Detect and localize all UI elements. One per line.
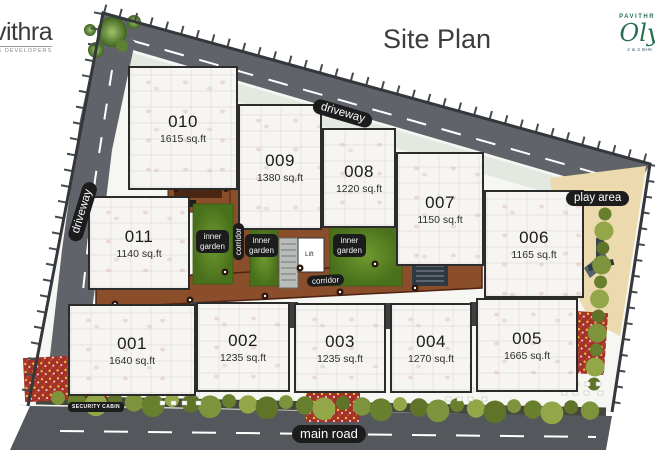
unit-010: 010 1615 sq.ft: [128, 66, 238, 190]
unit-area: 1140 sq.ft: [116, 248, 161, 260]
unit-number: 005: [512, 329, 542, 349]
unit-002: 002 1235 sq.ft: [196, 302, 290, 392]
unit-area: 1270 sq.ft: [408, 353, 454, 365]
lift-label: Lift: [305, 251, 314, 258]
page-title: Site Plan: [383, 24, 491, 55]
unit-number: 003: [325, 332, 355, 352]
unit-area: 1235 sq.ft: [317, 353, 363, 365]
unit-number: 010: [168, 112, 198, 132]
unit-005: 005 1665 sq.ft: [476, 298, 578, 392]
unit-011: 011 1140 sq.ft: [88, 196, 190, 290]
unit-area: 1665 sq.ft: [504, 350, 550, 362]
security-cabin-label: SECURITY CABIN: [68, 402, 124, 412]
project-logo: PAVITHRA Oly 2 & 3 BHK: [611, 14, 655, 53]
inner-garden-label-3: inner garden: [333, 234, 366, 257]
unit-number: 006: [519, 228, 549, 248]
unit-area: 1380 sq.ft: [257, 172, 303, 184]
inner-garden-label-1: inner garden: [196, 230, 229, 253]
corridor-horizontal-label: corridor: [307, 274, 345, 287]
unit-001: 001 1640 sq.ft: [68, 304, 196, 396]
unit-number: 008: [344, 162, 374, 182]
project-logo-tagline: 2 & 3 BHK: [611, 48, 655, 53]
unit-007: 007 1150 sq.ft: [396, 152, 484, 266]
unit-006: 006 1165 sq.ft: [484, 190, 584, 298]
main-road-label: main road: [292, 425, 366, 443]
corridor-vertical-label: corridor: [233, 223, 244, 260]
unit-area: 1640 sq.ft: [109, 355, 155, 367]
unit-area: 1235 sq.ft: [220, 352, 266, 364]
unit-number: 001: [117, 334, 147, 354]
project-logo-name: Oly: [611, 21, 655, 45]
unit-004: 004 1270 sq.ft: [390, 303, 472, 393]
unit-number: 004: [416, 332, 446, 352]
unit-area: 1165 sq.ft: [511, 249, 556, 261]
unit-003: 003 1235 sq.ft: [294, 303, 386, 393]
play-area-label: play area: [566, 191, 629, 206]
unit-area: 1615 sq.ft: [160, 133, 206, 145]
unit-number: 009: [265, 151, 295, 171]
inner-garden-label-2: inner garden: [245, 234, 278, 257]
developer-logo-name: vithra: [0, 20, 52, 47]
developer-logo: vithra & DEVELOPERS: [0, 20, 52, 55]
site-plan-canvas: Site Plan vithra & DEVELOPERS PAVITHRA O…: [0, 0, 655, 450]
unit-009: 009 1380 sq.ft: [238, 104, 322, 230]
unit-area: 1150 sq.ft: [417, 214, 462, 226]
developer-logo-tagline: & DEVELOPERS: [0, 49, 52, 55]
unit-number: 007: [425, 193, 455, 213]
unit-008: 008 1220 sq.ft: [322, 128, 396, 228]
unit-area: 1220 sq.ft: [336, 183, 382, 195]
unit-number: 002: [228, 331, 258, 351]
unit-number: 011: [125, 227, 154, 247]
